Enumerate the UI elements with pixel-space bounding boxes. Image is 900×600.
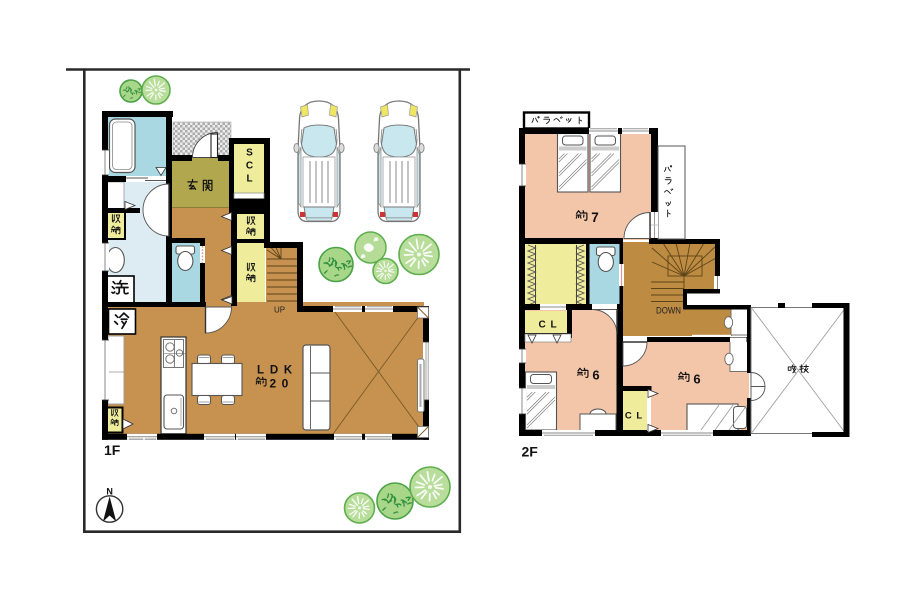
svg-text:S: S [246, 148, 253, 159]
svg-text:C: C [246, 161, 253, 172]
svg-text:2F: 2F [522, 444, 539, 460]
svg-text:N: N [106, 487, 113, 497]
svg-text:6: 6 [693, 372, 700, 387]
svg-text:UP: UP [274, 306, 285, 315]
svg-text:6: 6 [592, 368, 599, 383]
svg-text:7: 7 [591, 210, 599, 225]
svg-text:C L: C L [625, 411, 643, 422]
svg-text:L: L [246, 174, 252, 185]
svg-text:LDK: LDK [257, 365, 298, 377]
svg-text:DOWN: DOWN [656, 306, 681, 316]
svg-text:20: 20 [270, 377, 294, 391]
svg-text:1F: 1F [104, 442, 121, 458]
svg-text:C L: C L [538, 320, 557, 331]
